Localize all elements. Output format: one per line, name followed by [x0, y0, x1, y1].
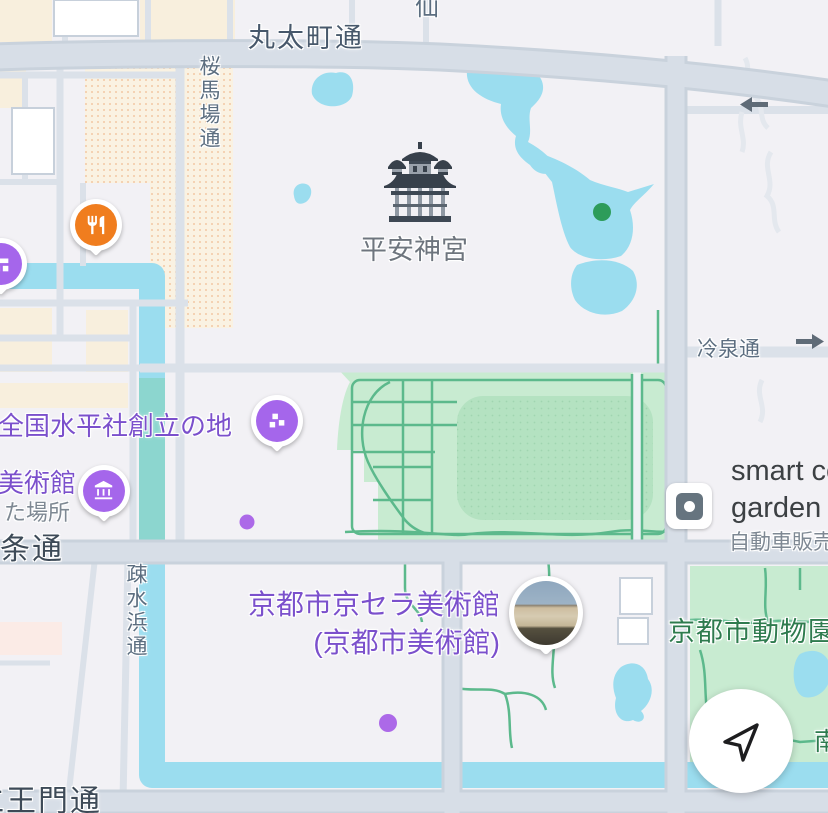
green-poi-dot[interactable] — [593, 203, 611, 221]
purple-poi-dot-2[interactable] — [379, 714, 397, 732]
shrine-icon[interactable] — [381, 140, 459, 224]
restaurant-pin[interactable] — [70, 199, 122, 261]
museum-photo — [514, 581, 578, 645]
purple-poi-dot-1[interactable] — [240, 515, 255, 530]
navigation-arrow-icon — [717, 717, 765, 765]
building-square-poi[interactable] — [666, 483, 712, 529]
map-view[interactable]: 丸太町通 仙 桜馬場通 冷泉通 二条通 仁王門通 疎水浜通 平安神宮 全国水平社… — [0, 0, 828, 813]
fork-knife-icon — [85, 214, 107, 236]
historic-site-squares-icon — [266, 410, 288, 432]
navigate-button[interactable] — [689, 689, 793, 793]
monument-blocks-icon — [0, 253, 12, 275]
building-square-icon — [676, 493, 703, 520]
building-dot-icon — [684, 501, 695, 512]
museum-pin[interactable] — [78, 465, 130, 527]
bank-columns-icon — [93, 480, 115, 502]
historic-site-pin[interactable] — [251, 395, 303, 457]
museum-photo-pin[interactable] — [509, 576, 583, 664]
monument-pin-edge[interactable] — [0, 238, 27, 300]
map-canvas[interactable] — [0, 0, 828, 813]
